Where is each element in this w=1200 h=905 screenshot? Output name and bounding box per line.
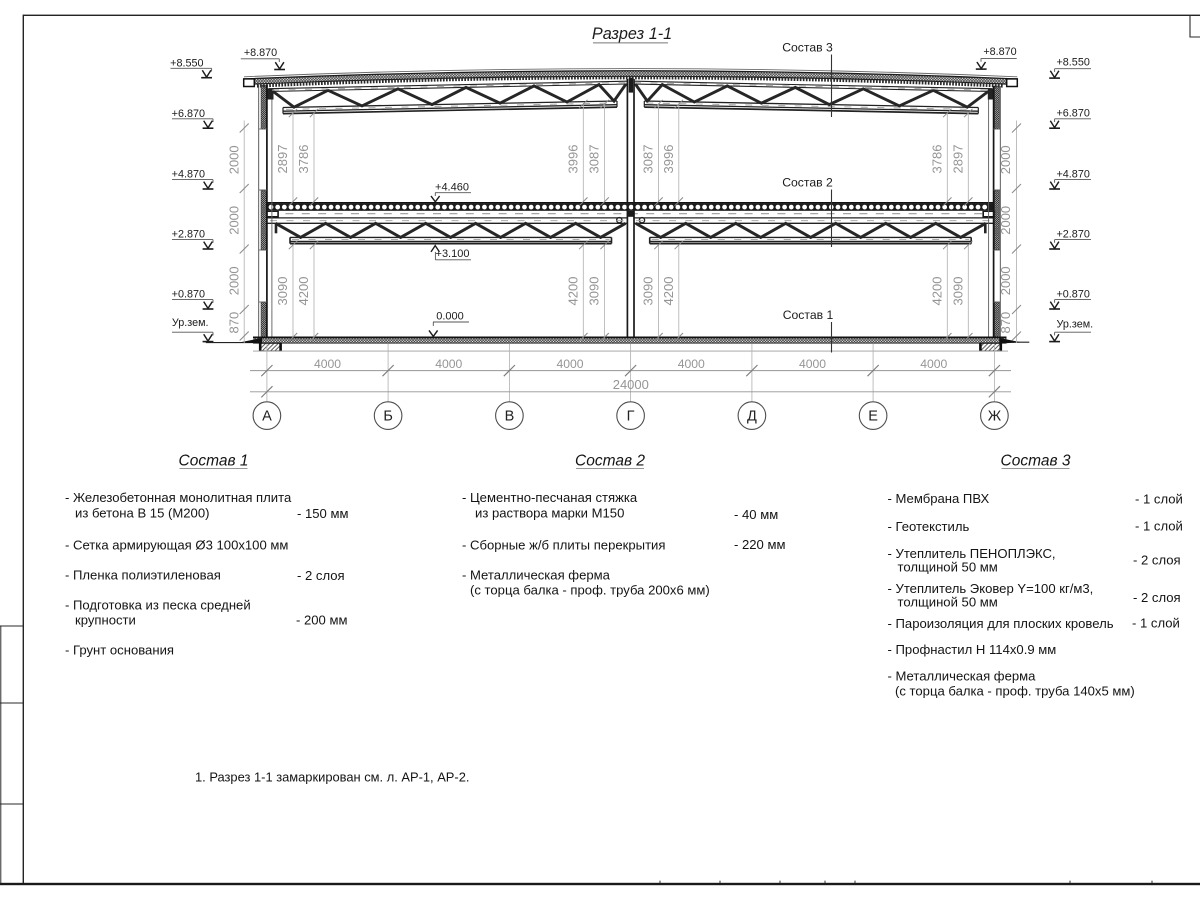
svg-text:+4.870: +4.870	[172, 169, 205, 181]
svg-text:Е: Е	[868, 409, 878, 425]
svg-text:- Цементно-песчаная стяжка: - Цементно-песчаная стяжка	[462, 490, 638, 505]
svg-text:- Профнастил Н 114х0.9 мм: - Профнастил Н 114х0.9 мм	[888, 642, 1057, 657]
svg-text:- Подготовка из песка средней: - Подготовка из песка средней	[65, 598, 251, 613]
svg-text:3087: 3087	[641, 145, 656, 174]
svg-text:+8.550: +8.550	[170, 57, 203, 69]
svg-text:толщиной 50 мм: толщиной 50 мм	[898, 595, 998, 610]
svg-text:Ур.зем.: Ур.зем.	[1057, 318, 1094, 330]
svg-text:+8.550: +8.550	[1057, 57, 1090, 69]
svg-text:+4.870: +4.870	[1057, 169, 1090, 181]
svg-text:из бетона В 15 (М200): из бетона В 15 (М200)	[75, 506, 210, 521]
svg-text:870: 870	[227, 312, 242, 334]
svg-text:4000: 4000	[435, 357, 462, 371]
svg-text:- Грунт основания: - Грунт основания	[65, 643, 174, 658]
svg-text:+2.870: +2.870	[1057, 229, 1090, 241]
svg-text:Состав 2: Состав 2	[575, 453, 645, 470]
svg-text:2000: 2000	[998, 266, 1013, 295]
svg-text:- 1 слой: - 1 слой	[1135, 519, 1183, 534]
svg-text:4000: 4000	[799, 357, 826, 371]
svg-text:2000: 2000	[998, 145, 1013, 174]
svg-text:+4.460: +4.460	[435, 181, 469, 193]
svg-text:0.000: 0.000	[436, 310, 464, 322]
svg-text:3996: 3996	[565, 145, 580, 174]
svg-text:4000: 4000	[556, 357, 583, 371]
svg-text:- 150 мм: - 150 мм	[297, 506, 349, 521]
svg-text:- Металлическая ферма: - Металлическая ферма	[888, 669, 1037, 684]
svg-text:- 2 слоя: - 2 слоя	[1133, 590, 1181, 605]
svg-text:+0.870: +0.870	[172, 289, 205, 301]
svg-text:+2.870: +2.870	[172, 229, 205, 241]
svg-text:- 2 слоя: - 2 слоя	[297, 568, 345, 583]
svg-text:Ур.зем.: Ур.зем.	[172, 317, 209, 329]
svg-text:Ж: Ж	[988, 409, 1002, 425]
svg-text:4200: 4200	[929, 277, 944, 306]
svg-text:Б: Б	[383, 409, 393, 425]
svg-text:Состав 3: Состав 3	[1001, 453, 1071, 470]
svg-text:Разрез 1-1: Разрез 1-1	[592, 25, 672, 43]
svg-text:4000: 4000	[678, 357, 705, 371]
svg-text:2897: 2897	[275, 145, 290, 174]
svg-text:- Пленка полиэтиленовая: - Пленка полиэтиленовая	[65, 568, 221, 583]
svg-text:- 1 слой: - 1 слой	[1132, 616, 1180, 631]
svg-text:2897: 2897	[950, 145, 965, 174]
svg-text:А: А	[262, 409, 272, 425]
svg-text:из раствора марки М150: из раствора марки М150	[475, 506, 624, 521]
svg-text:- 40 мм: - 40 мм	[734, 507, 778, 522]
svg-text:- Железобетонная монолитная п: - Железобетонная монолитная плита	[65, 490, 292, 505]
svg-text:- 200 мм: - 200 мм	[296, 613, 348, 628]
svg-text:Состав 1: Состав 1	[179, 453, 249, 470]
svg-text:2000: 2000	[998, 206, 1013, 235]
svg-text:4000: 4000	[314, 357, 341, 371]
svg-text:870: 870	[998, 312, 1013, 334]
svg-text:+3.100: +3.100	[436, 248, 470, 260]
svg-text:крупности: крупности	[75, 613, 136, 628]
svg-text:24000: 24000	[613, 377, 649, 392]
svg-text:- Геотекстиль: - Геотекстиль	[888, 519, 970, 534]
svg-text:Д: Д	[747, 409, 757, 425]
svg-text:+6.870: +6.870	[1057, 107, 1090, 119]
svg-text:- Мембрана ПВХ: - Мембрана ПВХ	[888, 491, 990, 506]
svg-text:2000: 2000	[227, 145, 242, 174]
svg-text:- 1 слой: - 1 слой	[1135, 492, 1183, 507]
svg-text:4200: 4200	[661, 277, 676, 306]
svg-text:+6.870: +6.870	[172, 108, 205, 120]
svg-text:+8.870: +8.870	[983, 46, 1016, 58]
svg-text:4200: 4200	[565, 277, 580, 306]
svg-text:3786: 3786	[929, 145, 944, 174]
svg-text:3087: 3087	[587, 145, 602, 174]
svg-text:2000: 2000	[227, 206, 242, 235]
svg-text:+0.870: +0.870	[1057, 289, 1090, 301]
svg-text:3090: 3090	[641, 277, 656, 306]
svg-text:Состав 3: Состав 3	[782, 41, 833, 55]
svg-text:- Сборные ж/б плиты перекрытия: - Сборные ж/б плиты перекрытия	[462, 538, 665, 553]
svg-text:3090: 3090	[275, 277, 290, 306]
svg-text:3090: 3090	[950, 277, 965, 306]
svg-text:толщиной 50 мм: толщиной 50 мм	[898, 560, 998, 575]
svg-text:Состав 1: Состав 1	[783, 308, 834, 322]
svg-text:+8.870: +8.870	[244, 47, 277, 59]
svg-text:(с торца балка - проф. труба 2: (с торца балка - проф. труба 200х6 мм)	[470, 583, 710, 598]
svg-text:2000: 2000	[227, 266, 242, 295]
svg-text:- 2 слоя: - 2 слоя	[1133, 553, 1181, 568]
svg-text:1. Разрез 1-1 замаркирован см.: 1. Разрез 1-1 замаркирован см. л. АР-1, …	[195, 770, 469, 785]
svg-text:(с торца балка - проф. труба 1: (с торца балка - проф. труба 140х5 мм)	[895, 684, 1135, 699]
svg-text:4000: 4000	[920, 357, 947, 371]
svg-text:3786: 3786	[296, 145, 311, 174]
svg-text:В: В	[505, 409, 515, 425]
svg-text:3090: 3090	[587, 277, 602, 306]
svg-text:4200: 4200	[296, 277, 311, 306]
svg-text:- Пароизоляция для плоских кро: - Пароизоляция для плоских кровель	[888, 616, 1114, 631]
svg-text:3996: 3996	[661, 145, 676, 174]
svg-text:- Сетка армирующая Ø3 100х100: - Сетка армирующая Ø3 100х100 мм	[65, 538, 288, 553]
svg-text:Г: Г	[627, 409, 635, 425]
svg-text:- Металлическая ферма: - Металлическая ферма	[462, 568, 611, 583]
svg-text:Состав 2: Состав 2	[782, 176, 833, 190]
svg-text:- 220 мм: - 220 мм	[734, 537, 786, 552]
